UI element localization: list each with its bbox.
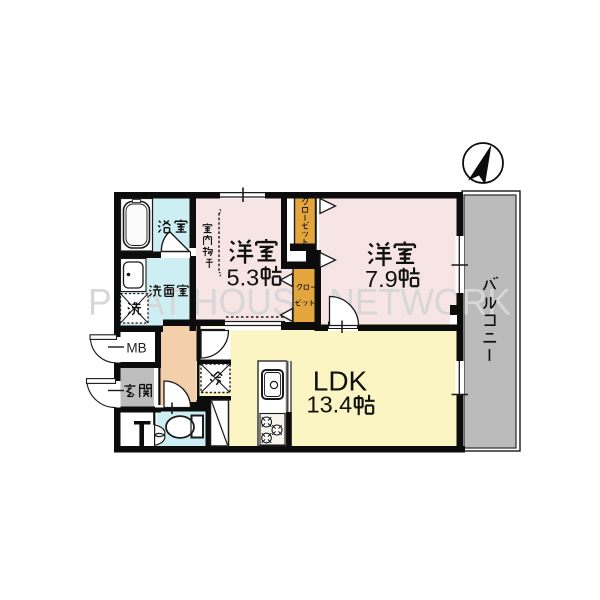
svg-text:MB: MB	[126, 341, 146, 356]
svg-text:5.3: 5.3	[227, 265, 260, 291]
svg-text:7.9: 7.9	[365, 266, 398, 292]
svg-text:13.4: 13.4	[307, 392, 353, 418]
